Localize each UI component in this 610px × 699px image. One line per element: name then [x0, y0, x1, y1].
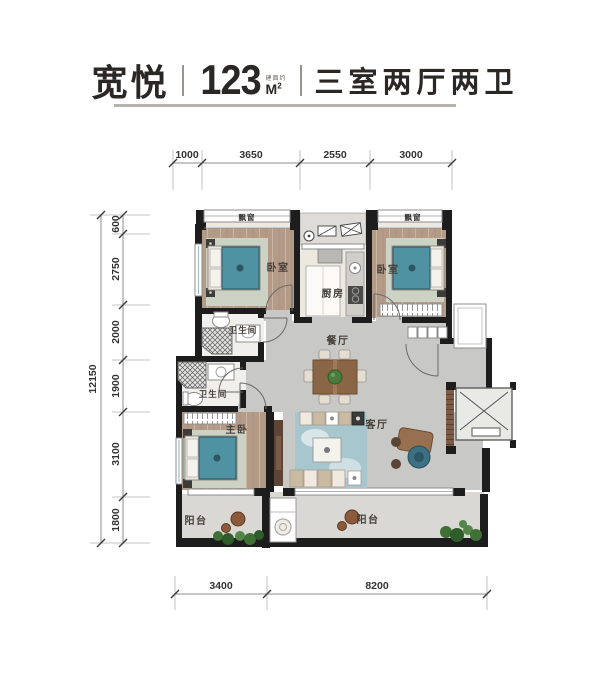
room-label-bay-right: 飘窗 [405, 212, 422, 222]
dim-left-total: 12150 [87, 364, 99, 393]
dimension-bottom: 3400 8200 [171, 576, 491, 610]
table-plant [328, 370, 342, 384]
pillow [431, 249, 442, 267]
equipment-symbol [340, 223, 361, 237]
shoe-cabinet [408, 327, 417, 338]
balcony-table [231, 512, 245, 526]
room-label-balcony-right: 阳台 [357, 513, 380, 526]
room-label-bath-upper: 卫生间 [229, 325, 258, 335]
dim-top-1: 3650 [239, 149, 263, 161]
chair [339, 395, 350, 404]
laundry-area [270, 498, 296, 542]
chair [304, 370, 313, 382]
dim-left-3: 1900 [110, 374, 122, 398]
entry-floor [448, 344, 486, 388]
floor-plan-page: 宽悦 123 建面约 M2 三室两厅两卫 [0, 0, 610, 699]
stool [391, 437, 401, 447]
stove [348, 286, 363, 304]
dim-left-0: 600 [110, 215, 122, 233]
stool [391, 459, 401, 469]
kitchen-counter [346, 252, 364, 316]
room-label-bedroom-right: 卧室 [377, 263, 400, 276]
room-label-master: 主卧 [226, 423, 249, 436]
fridge [318, 249, 342, 263]
pillow [187, 439, 198, 457]
chair [339, 350, 350, 359]
room-label-bath-lower: 卫生间 [199, 389, 228, 399]
double-bed [392, 246, 444, 290]
shower [178, 362, 206, 388]
elevator-door [472, 428, 500, 436]
pillow [210, 249, 221, 267]
elevator-shaft [456, 388, 512, 440]
pillow [210, 269, 221, 287]
bedroom-left-furniture [206, 238, 268, 306]
shoe-cabinet [418, 327, 427, 338]
dim-bottom-0: 3400 [209, 580, 233, 592]
dim-top-3: 3000 [399, 149, 423, 161]
shoe-cabinet [428, 327, 437, 338]
dim-left-2: 2000 [110, 320, 122, 344]
dim-left-5: 1800 [110, 508, 122, 532]
dim-bottom-1: 8200 [365, 580, 389, 592]
balcony-stool [222, 524, 231, 533]
room-label-living: 客厅 [365, 418, 389, 431]
pillow [431, 269, 442, 287]
chair [319, 350, 330, 359]
double-bed [185, 436, 237, 480]
double-bed [208, 246, 260, 290]
dim-top-0: 1000 [175, 149, 199, 161]
chair [319, 395, 330, 404]
equipment-symbol [318, 226, 336, 236]
master-balcony-window [188, 489, 254, 495]
bedroom-right-furniture [380, 238, 446, 316]
floor-plan-svg: 1000 3650 2550 3000 12150 600 [0, 0, 610, 699]
dim-top-2: 2550 [323, 149, 347, 161]
room-label-bedroom-left: 卧室 [267, 261, 290, 274]
textured-wall-strip [446, 390, 454, 446]
dim-left-4: 3100 [110, 442, 122, 466]
room-label-bay-left: 飘窗 [239, 212, 256, 222]
room-label-balcony-left: 阳台 [185, 514, 208, 527]
kitchen-window [302, 244, 364, 249]
room-label-dining: 餐厅 [326, 334, 350, 347]
room-label-kitchen: 厨房 [322, 287, 345, 300]
dimension-left: 12150 600 2750 2000 1900 3100 1800 [87, 211, 150, 547]
entry-fixtures [408, 327, 447, 338]
chair [357, 370, 366, 382]
dim-left-1: 2750 [110, 257, 122, 281]
pillow [187, 459, 198, 477]
shoe-cabinet [438, 327, 447, 338]
dimension-top: 1000 3650 2550 3000 [169, 149, 456, 190]
balcony-stool [338, 522, 347, 531]
ac-platform [454, 304, 486, 348]
